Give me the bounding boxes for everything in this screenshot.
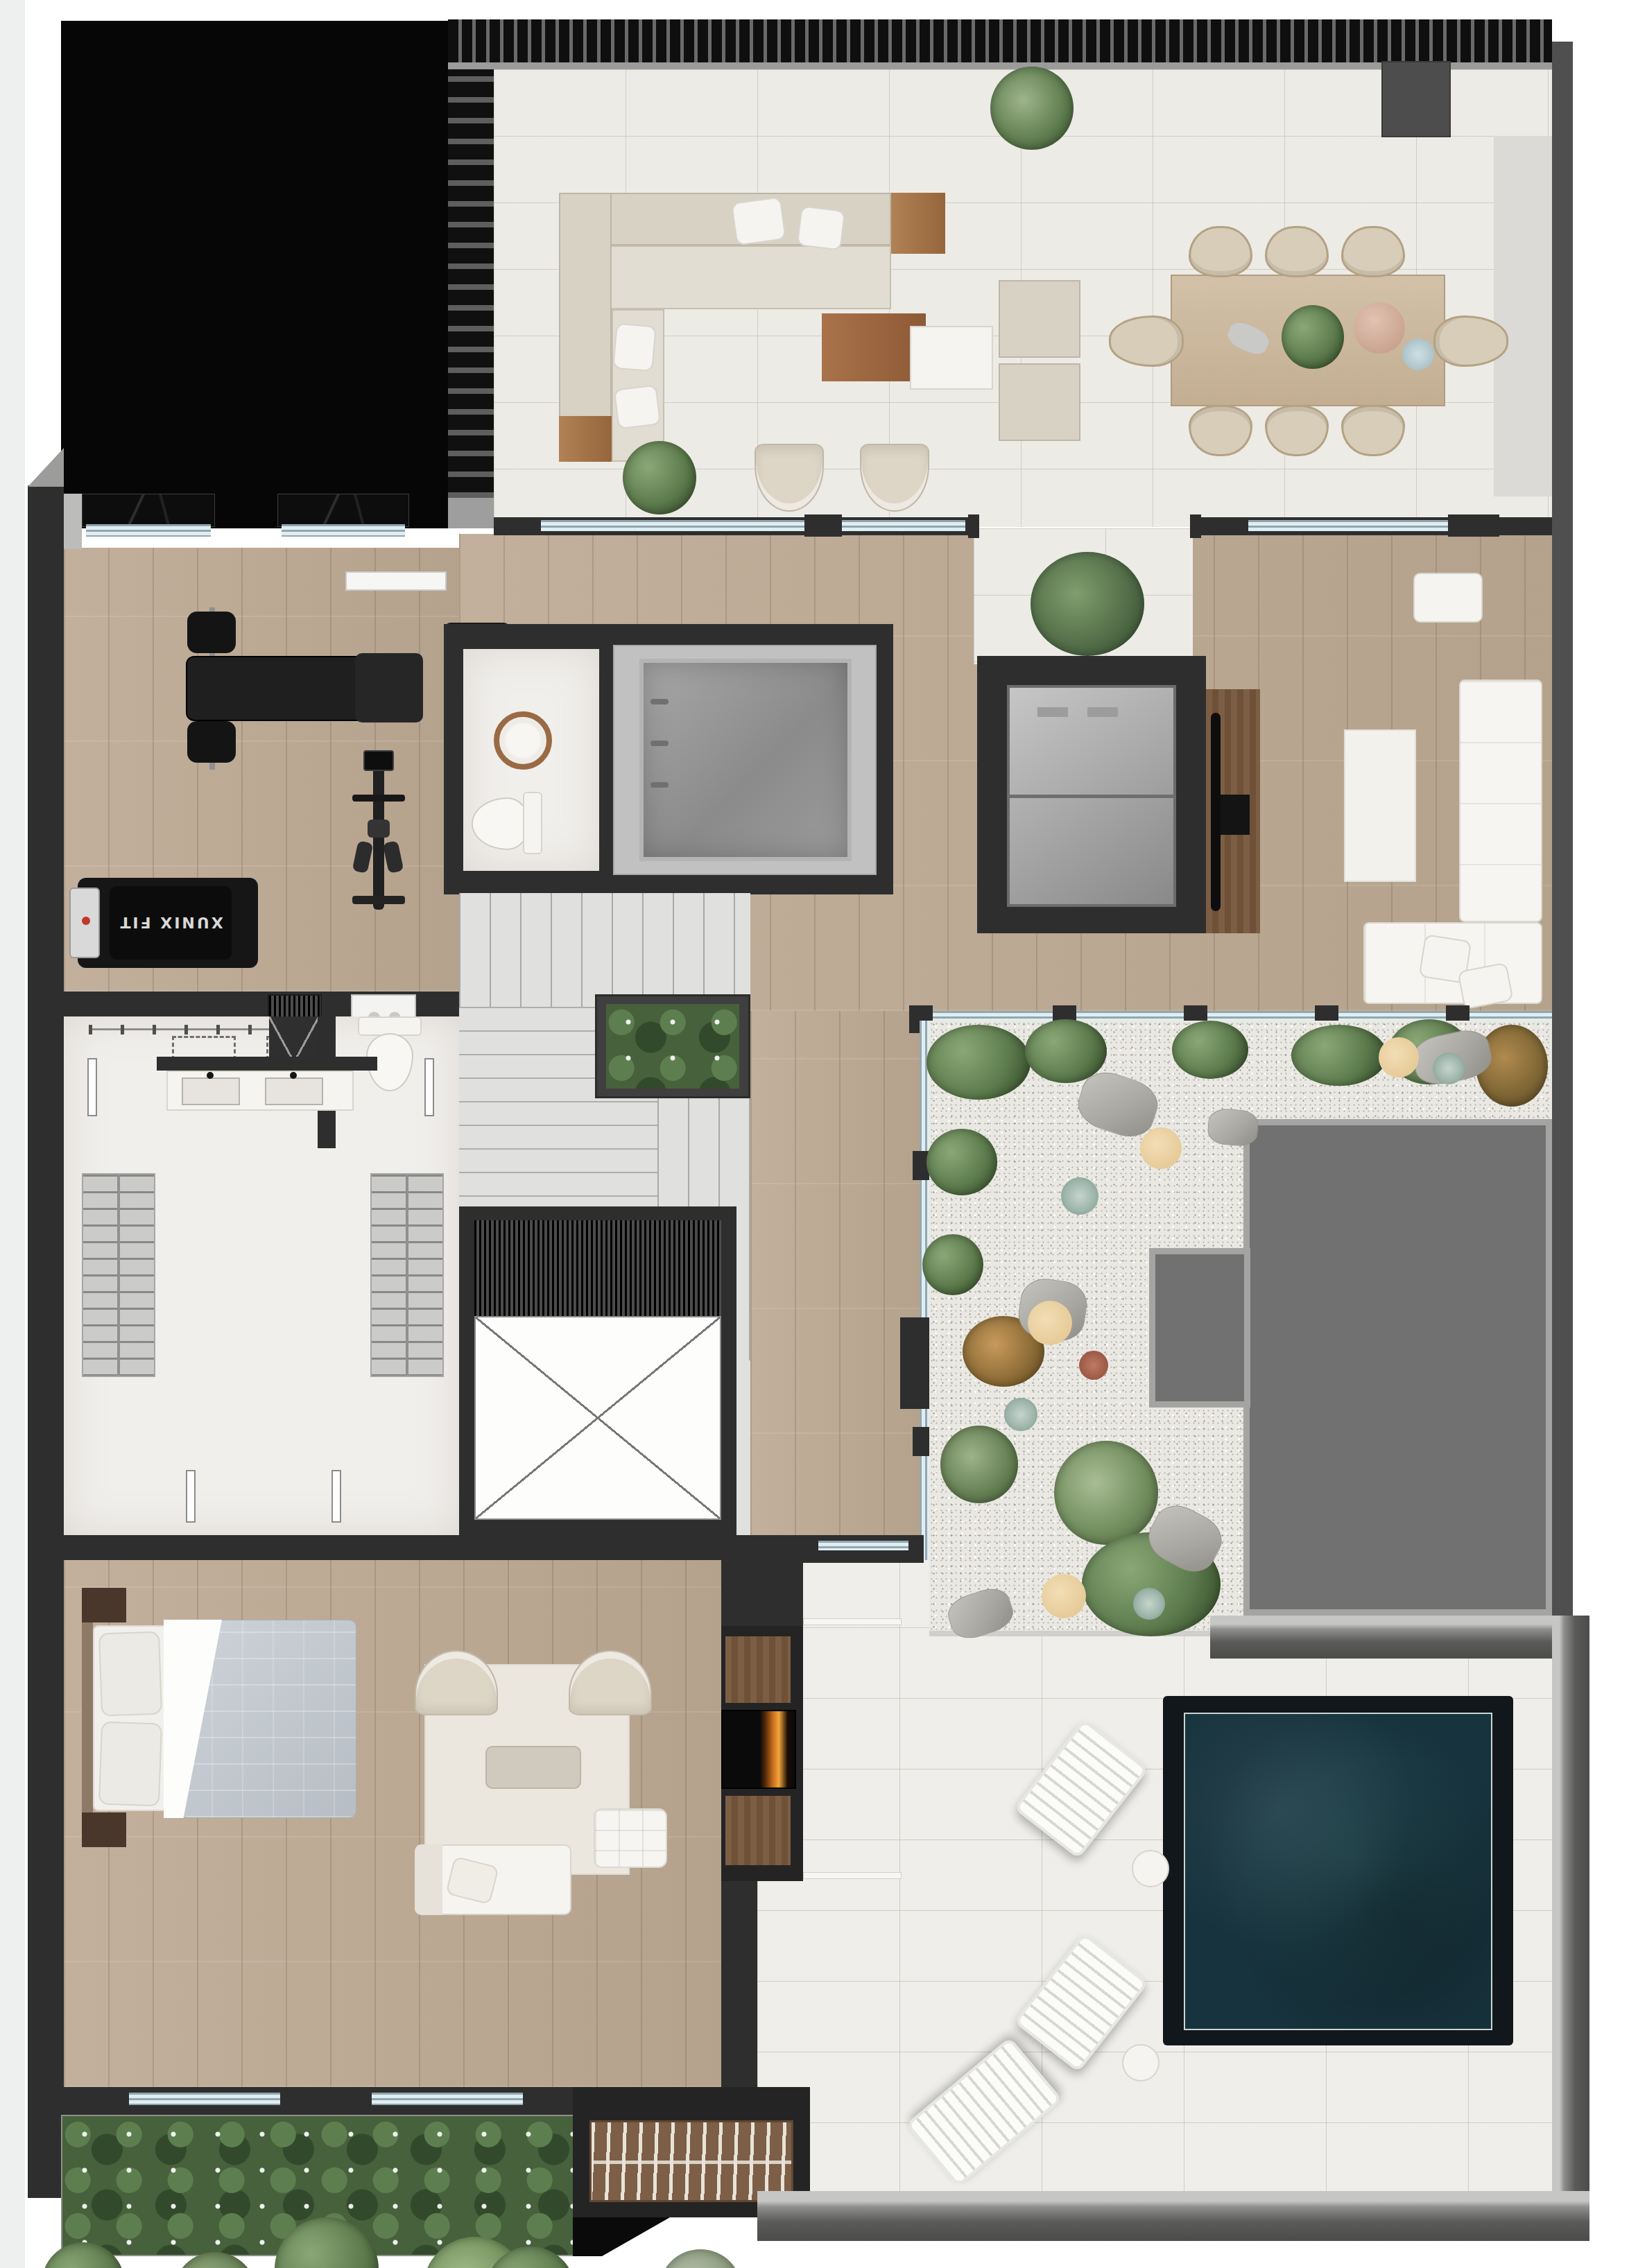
succulent — [1061, 1177, 1098, 1215]
weight-bench — [186, 656, 366, 721]
fireplace-side-wall — [716, 1881, 757, 2090]
shower-floor — [639, 659, 852, 861]
door-sill — [803, 1618, 902, 1625]
ottoman-bench — [999, 363, 1080, 441]
window-glass — [282, 524, 405, 537]
bedroom-window — [129, 2093, 280, 2105]
parapet-wall-right — [1552, 1616, 1589, 2240]
daybed-back — [415, 1844, 442, 1915]
garden-glass-wall-left — [920, 1021, 929, 1560]
lounge-ottoman — [1413, 573, 1483, 623]
shower-drain — [650, 741, 669, 746]
louver-screen — [448, 61, 494, 516]
wardrobe — [370, 1173, 444, 1377]
entry-plant-pot — [1031, 552, 1144, 656]
vanity-wall — [157, 1057, 377, 1071]
stepping-stone — [1140, 1127, 1182, 1169]
sliding-door-glass — [842, 520, 965, 531]
dining-bowl — [1354, 302, 1405, 354]
lounge-rug — [1344, 729, 1416, 882]
stepping-stone — [1028, 1301, 1072, 1345]
wall-post — [968, 514, 979, 538]
window-bay — [277, 494, 409, 527]
pool-water — [1184, 1713, 1492, 2030]
weight-bench-head — [355, 653, 423, 722]
towel-rail — [89, 1025, 270, 1035]
roof-void-gray — [1243, 1119, 1552, 1616]
faucet — [207, 1072, 214, 1079]
left-margin — [0, 0, 25, 2268]
rower-handle — [352, 795, 405, 802]
garden-bush — [926, 1025, 1031, 1100]
gym-sideboard — [345, 571, 447, 591]
bed-pillow — [98, 1722, 162, 1807]
vanity-sink — [182, 1077, 240, 1105]
right-wall — [1552, 42, 1573, 1617]
elevator-vent — [1087, 707, 1118, 717]
treadmill-belt: XUNIX FIT — [110, 886, 232, 960]
left-wall — [28, 485, 64, 2198]
succulent — [1004, 1398, 1037, 1431]
stair-balustrade — [459, 893, 750, 1007]
dining-centerpiece-plant — [1282, 305, 1344, 369]
terrace-planter-box — [1381, 61, 1451, 137]
outdoor-sofa-wood-shelf — [891, 193, 945, 254]
elevator-vent — [1037, 707, 1068, 717]
door-leaf — [186, 1470, 196, 1523]
sofa-pillow — [797, 205, 846, 250]
treadmill-button — [82, 917, 90, 925]
garden-bush — [926, 1129, 997, 1195]
parapet-wall-bottom — [757, 2191, 1589, 2241]
sofa-pillow — [612, 323, 657, 372]
vanity-sink — [265, 1077, 323, 1105]
bench-shadow-wedge — [573, 2217, 670, 2256]
garden-bush — [1025, 1019, 1107, 1083]
drain-strip — [1494, 136, 1552, 496]
slatted-bench — [589, 2120, 793, 2202]
elevator-door-line — [1007, 795, 1176, 798]
wardrobe — [82, 1173, 155, 1377]
succulent — [1133, 1588, 1165, 1620]
void-skylight — [474, 1316, 721, 1520]
wall-post — [804, 514, 842, 537]
succulent — [1079, 1351, 1108, 1380]
dining-decor — [1402, 338, 1434, 370]
wall-post — [1448, 514, 1499, 537]
dining-chair — [1265, 226, 1329, 277]
tv-screen — [1211, 713, 1221, 911]
roof-void-gray-notch — [1149, 1248, 1250, 1408]
bedroom-window — [372, 2093, 523, 2105]
barbell-plates — [187, 612, 236, 653]
garden-bush — [1172, 1021, 1248, 1079]
sliding-door-glass — [1248, 520, 1449, 531]
pergola-slats — [448, 19, 1552, 62]
garden-bush — [922, 1234, 983, 1295]
fireplace-fire — [721, 1710, 796, 1789]
stepping-stone — [1379, 1037, 1419, 1077]
void-hatch — [474, 1220, 721, 1316]
ottoman-bench — [999, 280, 1080, 358]
bed-headboard — [82, 1622, 93, 1814]
nightstand — [82, 1588, 126, 1622]
outdoor-sofa-wood-shelf — [559, 416, 612, 462]
fireplace-cabinet — [725, 1796, 791, 1865]
barbell-plates — [187, 721, 236, 763]
shower-drain — [650, 699, 669, 704]
succulent — [1433, 1053, 1465, 1084]
tv-mount — [1221, 795, 1250, 835]
lounge-sofa-back — [1459, 679, 1542, 922]
fireplace-wall — [716, 1557, 803, 1626]
faucet — [290, 1072, 297, 1079]
rower-monitor — [363, 750, 394, 771]
round-sink — [494, 711, 552, 770]
dining-chair — [1109, 315, 1184, 367]
floor-plan-canvas: XUNIX FIT — [0, 0, 1629, 2268]
roof-void-black — [61, 21, 448, 528]
parapet-wall — [1210, 1616, 1552, 1659]
bed-pillow — [98, 1631, 162, 1717]
bedroom-north-wall — [64, 1535, 750, 1560]
louver-foot — [448, 498, 494, 528]
terrace-plant-pot — [623, 441, 696, 514]
rower-foot — [352, 896, 405, 904]
door-sill — [803, 1872, 902, 1879]
toilet-tank — [523, 792, 542, 854]
nightstand — [82, 1812, 126, 1847]
street-tree — [659, 2249, 742, 2268]
garden-bush — [1054, 1441, 1158, 1545]
stair-planter-green — [606, 1004, 739, 1089]
side-table — [1132, 1850, 1169, 1887]
coffee-table-top — [910, 326, 993, 390]
garden-rock — [1207, 1108, 1259, 1148]
door-leaf — [87, 1058, 97, 1116]
door-leaf — [331, 1470, 341, 1523]
sofa-pillow — [731, 196, 786, 245]
window-bay — [82, 494, 215, 527]
hall-floor-south — [750, 1011, 924, 1559]
bedroom-coffee-table — [485, 1746, 581, 1789]
shower-drain — [650, 782, 669, 788]
stepping-stone — [1042, 1574, 1086, 1618]
terrace-plant-pot — [990, 67, 1074, 150]
garden-bush — [940, 1426, 1018, 1503]
outdoor-sofa-seat-h — [610, 245, 891, 309]
wall-post — [1190, 514, 1201, 538]
wall-corner-wedge — [28, 448, 64, 487]
sliding-door-glass — [541, 520, 804, 531]
fireplace-cabinet — [725, 1636, 791, 1703]
rower-seat — [368, 820, 390, 838]
garden-bush — [1291, 1025, 1387, 1086]
terrace-door-glass — [818, 1541, 908, 1550]
quilted-ottoman — [594, 1808, 667, 1868]
dining-chair — [1341, 226, 1405, 277]
dining-chair — [1189, 226, 1252, 277]
door-leaf — [424, 1058, 434, 1116]
window-glass — [86, 524, 211, 537]
side-table — [1122, 2044, 1160, 2081]
sofa-pillow — [614, 384, 662, 429]
